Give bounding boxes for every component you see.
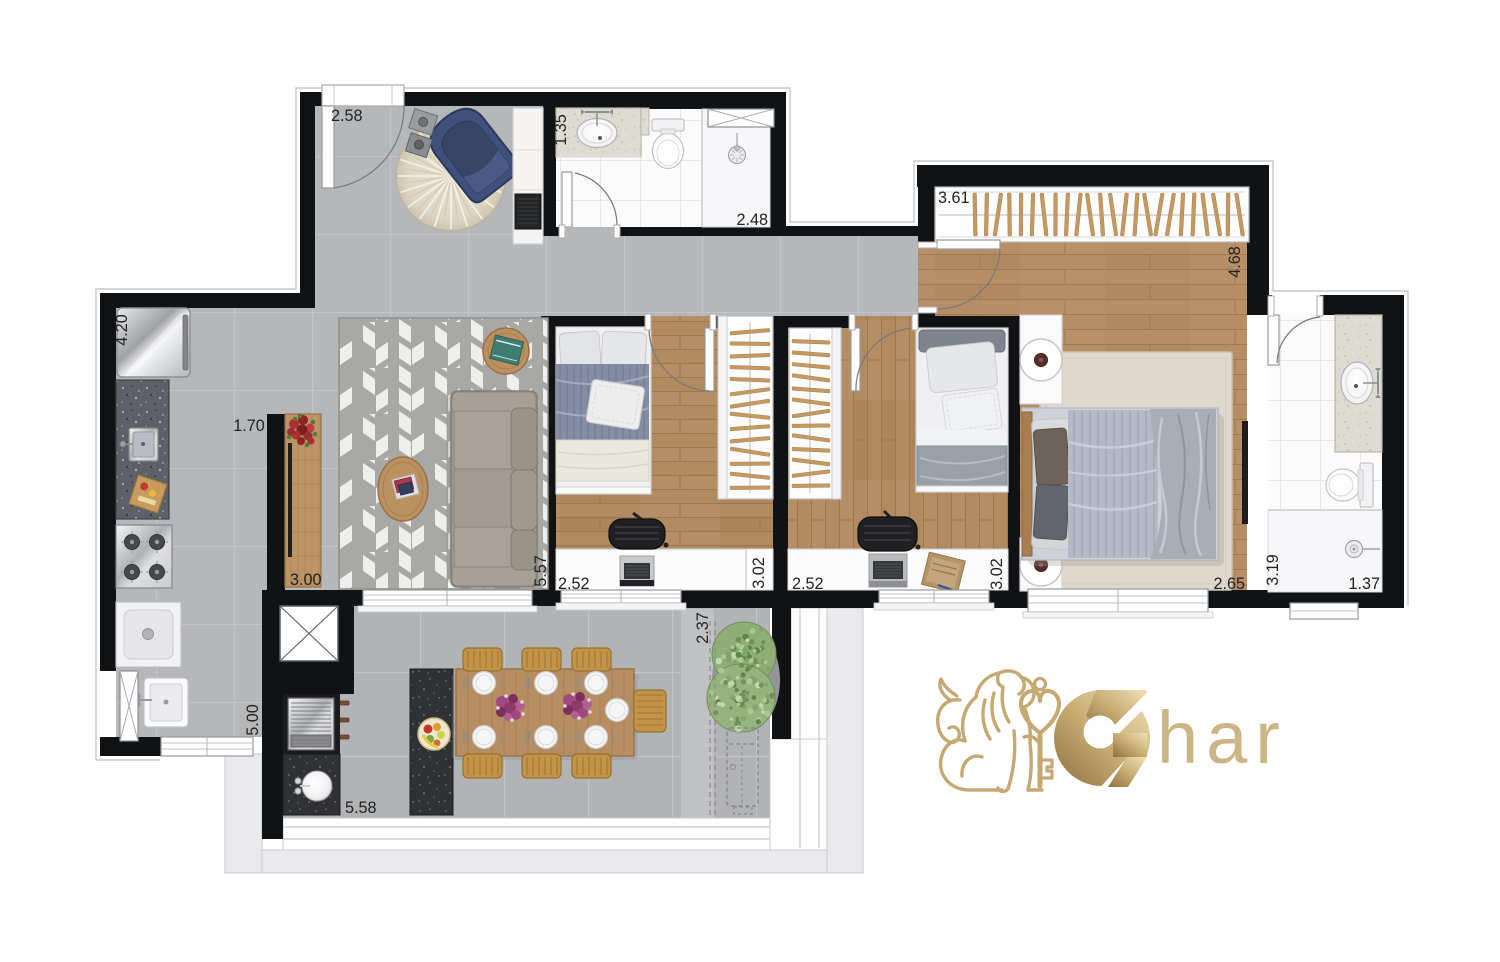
svg-text:2.48: 2.48: [736, 211, 768, 229]
svg-text:2.65: 2.65: [1213, 575, 1245, 593]
svg-text:1.35: 1.35: [552, 114, 570, 146]
svg-text:3.00: 3.00: [290, 571, 322, 589]
svg-text:3.19: 3.19: [1264, 554, 1282, 586]
svg-text:2.52: 2.52: [558, 575, 590, 593]
svg-text:4.68: 4.68: [1226, 246, 1244, 278]
svg-text:4.20: 4.20: [113, 314, 131, 346]
svg-text:3.02: 3.02: [988, 558, 1006, 590]
svg-text:5.00: 5.00: [244, 704, 262, 736]
svg-text:2.37: 2.37: [694, 612, 712, 644]
svg-text:2.58: 2.58: [331, 107, 363, 125]
svg-text:1.37: 1.37: [1348, 575, 1380, 593]
svg-text:5.58: 5.58: [345, 799, 377, 817]
svg-text:2.52: 2.52: [792, 575, 824, 593]
svg-text:3.02: 3.02: [750, 557, 768, 589]
svg-text:5.57: 5.57: [532, 555, 550, 587]
svg-text:1.70: 1.70: [233, 417, 265, 435]
svg-text:har: har: [1157, 696, 1288, 779]
svg-text:3.61: 3.61: [938, 189, 970, 207]
